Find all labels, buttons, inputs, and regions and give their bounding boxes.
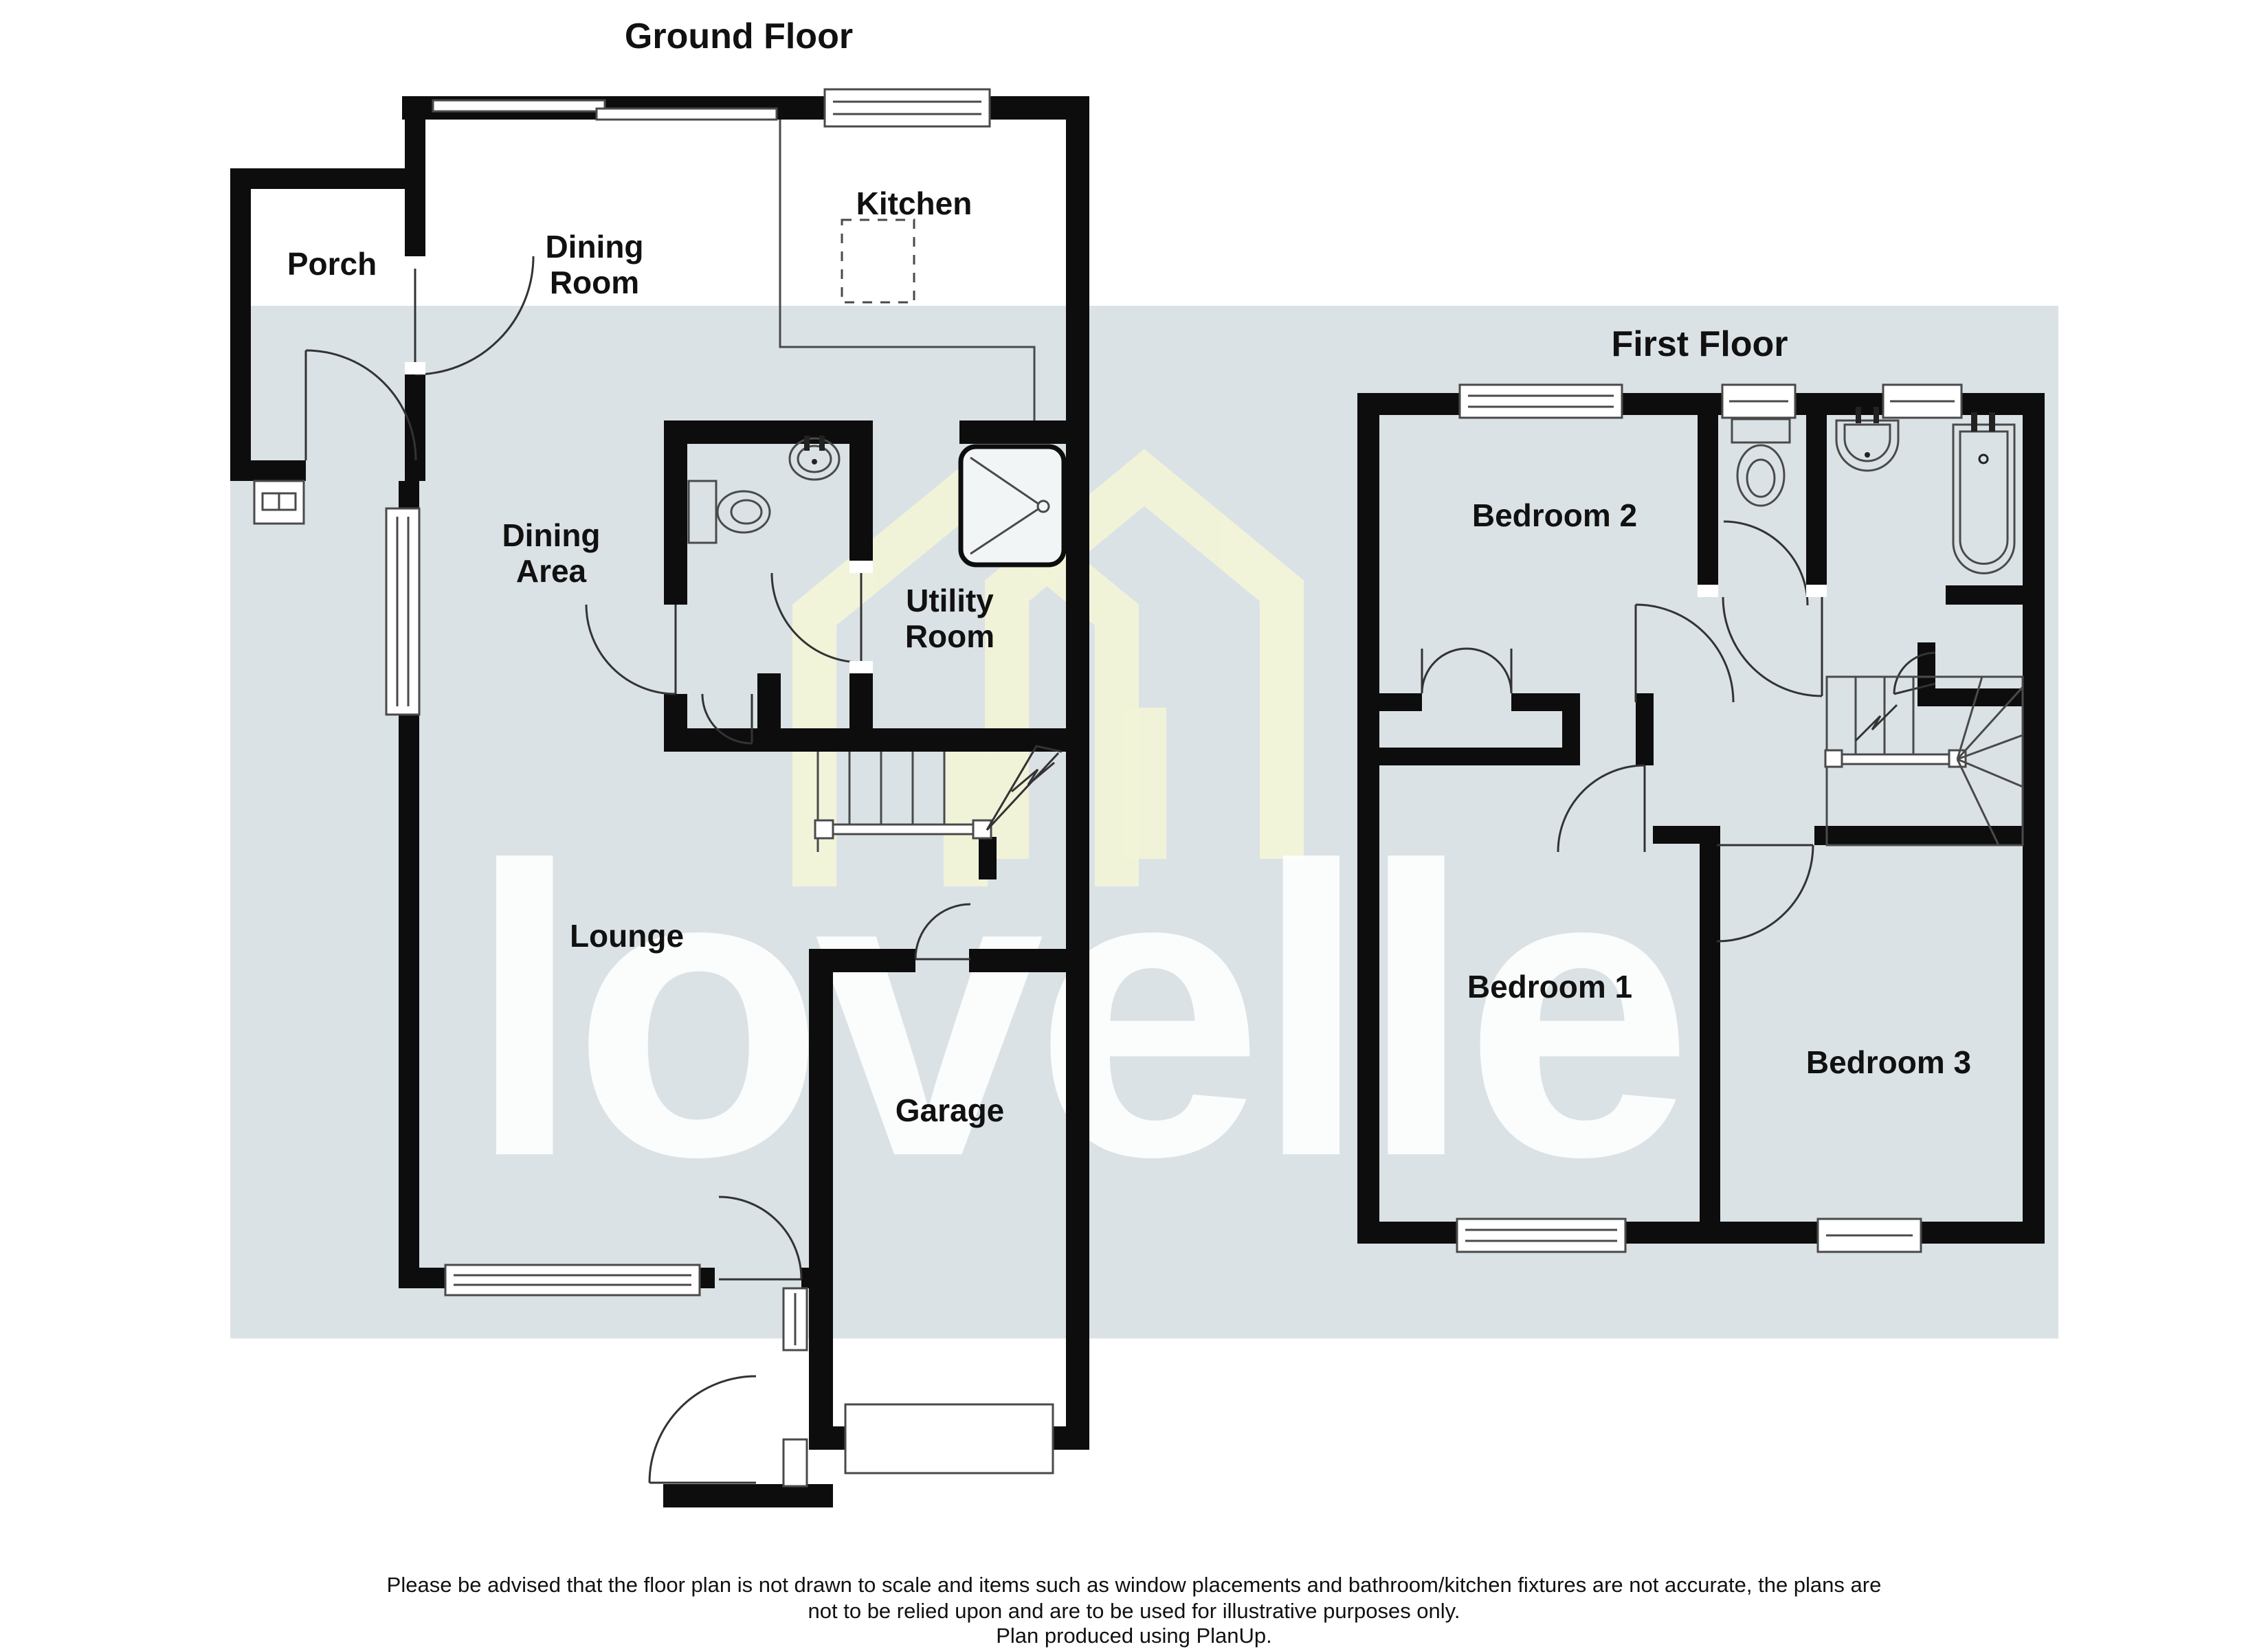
wall-segment [2023,393,2045,1244]
wall-segment [1636,748,1654,765]
wall-segment [664,420,687,605]
room-label-dining-room-1: Dining [545,229,643,265]
wc-window-ff [1722,385,1795,418]
room-label-utility-2: Room [905,618,994,654]
wall-segment [1946,585,2023,605]
floorplan-page: lovelle Ground Floor [0,0,2268,1649]
room-label-dining-room-2: Room [550,265,639,300]
wall-segment [1562,693,1580,765]
wall-segment [979,837,997,879]
wall-segment [1066,96,1089,1450]
wall-segment [664,420,873,444]
room-label-bedroom1: Bedroom 1 [1467,969,1632,1005]
bedroom2-window [1460,385,1622,418]
entry-sidelight-window [783,1288,807,1486]
wall-segment [230,168,425,189]
ground-floor-title: Ground Floor [625,16,853,56]
room-label-kitchen: Kitchen [856,186,972,221]
wall-segment [1698,415,1718,597]
disclaimer-line-1: Please be advised that the floor plan is… [0,1572,2268,1598]
kitchen-window [825,89,990,126]
wall-segment [664,728,1066,752]
bedroom3-window [1818,1219,1921,1252]
wall-segment [1379,748,1580,765]
room-label-porch: Porch [287,246,377,282]
wall-segment [849,673,873,728]
porch-step [254,481,304,524]
bathroom-window [1883,385,1961,418]
wall-segment [405,374,425,481]
wall-segment [663,1484,833,1507]
wall-segment [809,958,833,1450]
disclaimer-line-3: Plan produced using PlanUp. [0,1623,2268,1649]
wall-segment [230,460,306,481]
room-label-bedroom3: Bedroom 3 [1806,1044,1971,1080]
gf-shower-icon [961,447,1064,565]
garage-door [845,1404,1053,1473]
disclaimer-line-2: not to be relied upon and are to be used… [0,1598,2268,1624]
room-label-utility-1: Utility [906,583,994,618]
wall-segment [230,168,251,481]
first-floor-title: First Floor [1611,324,1788,364]
room-label-lounge: Lounge [570,918,684,954]
bedroom1-window [1457,1219,1625,1252]
ff-toilet-icon [1732,419,1790,506]
kitchen-appliance [842,220,914,302]
wall-segment [1379,693,1422,711]
room-label-dining-area-2: Area [516,553,587,589]
room-label-dining-area-1: Dining [502,517,600,553]
dining-area-window [386,508,419,715]
wall-segment [969,949,1066,972]
room-label-bedroom2: Bedroom 2 [1472,497,1637,533]
wall-segment [849,444,873,573]
entry-recess-door [649,1376,756,1483]
room-label-garage: Garage [896,1092,1005,1128]
lounge-window [445,1265,700,1295]
wall-segment [1806,415,1827,597]
wall-segment [1700,826,1720,1233]
wall-segment [1653,826,1700,844]
wall-segment [1357,393,1379,1244]
ff-bath-icon [1953,412,2014,573]
wall-segment [959,420,1066,444]
floorplan-canvas: lovelle Ground Floor [0,0,2268,1649]
